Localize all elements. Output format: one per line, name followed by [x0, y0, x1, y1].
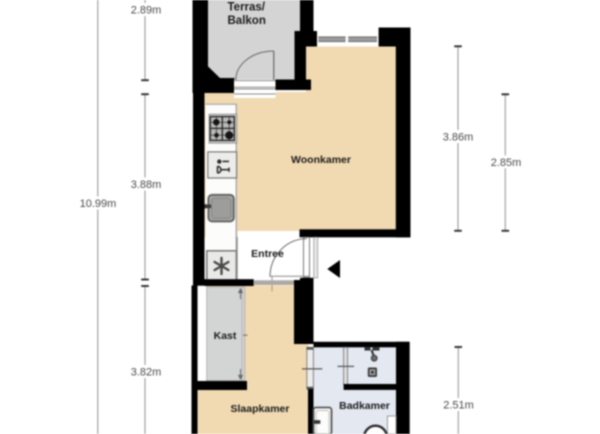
svg-text:Balkon: Balkon	[228, 15, 266, 27]
svg-text:10.99m: 10.99m	[80, 198, 117, 210]
svg-text:3.88m: 3.88m	[131, 179, 162, 191]
svg-text:3.86m: 3.86m	[443, 132, 474, 144]
svg-text:Woonkamer: Woonkamer	[291, 154, 351, 166]
svg-text:Kast: Kast	[214, 330, 237, 342]
svg-text:2.85m: 2.85m	[491, 157, 522, 169]
svg-text:Slaapkamer: Slaapkamer	[231, 403, 290, 415]
svg-text:Terras/: Terras/	[228, 2, 266, 14]
svg-text:Entree: Entree	[251, 248, 284, 260]
svg-text:2.89m: 2.89m	[131, 5, 162, 17]
svg-text:2.51m: 2.51m	[443, 400, 474, 412]
svg-text:Badkamer: Badkamer	[339, 400, 390, 412]
svg-text:3.82m: 3.82m	[131, 367, 162, 379]
